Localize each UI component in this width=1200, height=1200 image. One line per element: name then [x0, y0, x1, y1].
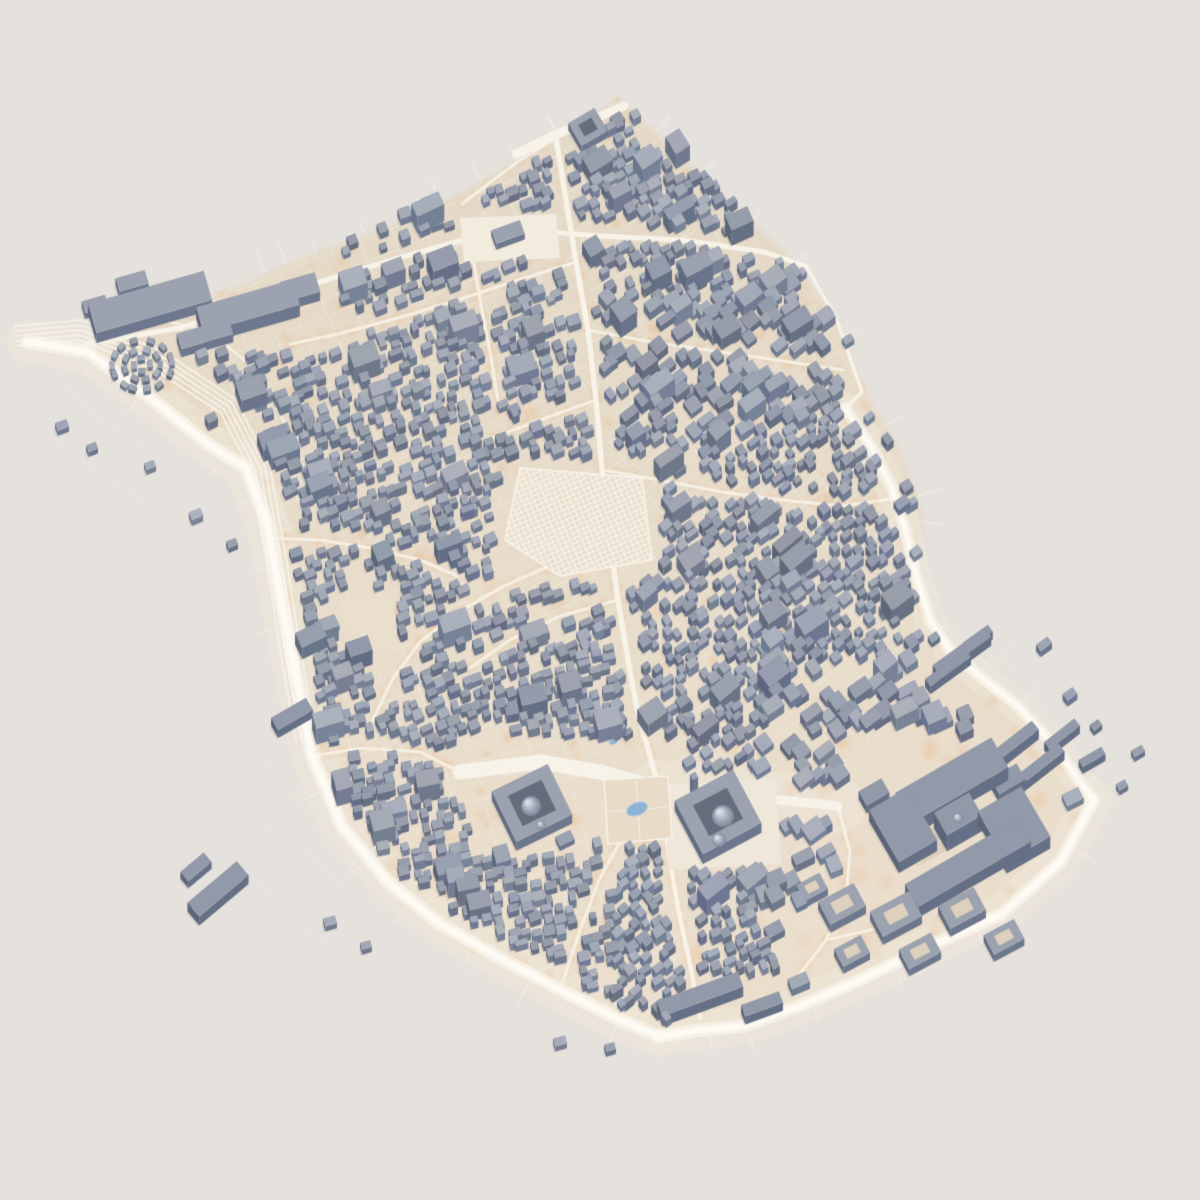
- city-map-canvas: [0, 0, 1200, 1200]
- map-viewport: [0, 0, 1200, 1200]
